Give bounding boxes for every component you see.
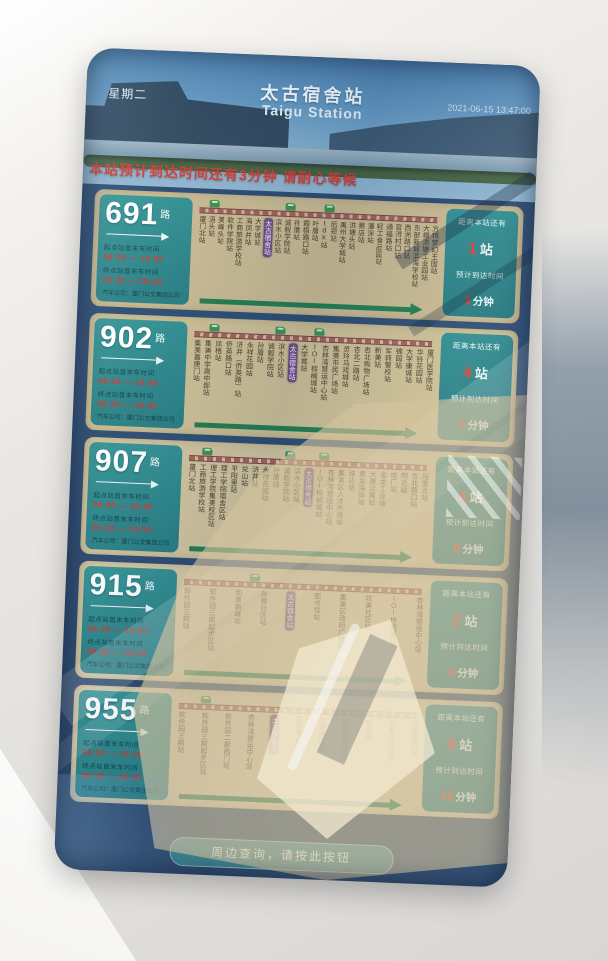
eta-stations-value: 4 xyxy=(457,488,467,505)
station-name: 金龙工业站 xyxy=(378,471,386,506)
eta-minutes-value: 6 xyxy=(448,665,455,679)
route-info-box: 907 路 起点站首末车时间 06:30 — 19:30 终点站首末车时间 06… xyxy=(85,442,182,553)
station-name: 厦门医学院站 xyxy=(425,349,434,391)
station-name: 官浔村口站 xyxy=(394,223,402,258)
nearby-query-button[interactable]: 周边查询，请按此按钮 xyxy=(168,837,393,875)
station-name: 集美中学高中部站 xyxy=(202,340,211,396)
bus-icon xyxy=(202,448,212,455)
eta-box: 距离本站还有 4站 预计到达时间 8分钟 xyxy=(432,456,508,566)
station-name: 华铃花园站 xyxy=(415,348,423,383)
route-suffix: 路 xyxy=(144,577,155,592)
eta-box: 距离本站还有 1站 预计到达时间 3分钟 xyxy=(442,209,518,319)
station-name: 孙厝站 xyxy=(256,342,264,363)
station-name: 永祥花园站 xyxy=(245,341,253,376)
route-panel: 915 路 起点站首末车时间 06:30 — 19:30 终点站首末车时间 06… xyxy=(75,561,509,696)
route-panel: 902 路 起点站首末车时间 06:30 — 19:30 终点站首末车时间 06… xyxy=(85,313,519,448)
route-direction-arrow-icon xyxy=(96,481,152,485)
station-name: 杏北路口站 xyxy=(410,472,418,507)
bus-icon xyxy=(319,452,329,459)
bus-icon xyxy=(314,328,324,335)
route-panel: 955 路 起点站首末车时间 06:30 — 19:30 终点站首末车时间 06… xyxy=(70,684,504,819)
eta-stations-unit: 站 xyxy=(469,490,484,506)
station-name: 浒井（侨英路）站 xyxy=(234,341,243,397)
eta-stations-value: 2 xyxy=(452,612,462,629)
route-direction-arrow-icon xyxy=(106,233,162,237)
bus-company-label: 汽车公司：厦门公交集团公司 xyxy=(86,659,167,671)
bus-company-label: 汽车公司：厦门公交集团公司 xyxy=(102,288,183,300)
travel-direction-arrow-icon xyxy=(179,794,391,808)
eta-prefix-label: 距离本站还有 xyxy=(433,587,499,601)
eta-box: 距离本站还有 5站 预计到达时间 15分钟 xyxy=(421,704,497,814)
station-name: 和美新城站 xyxy=(233,589,241,624)
station-name: 大嶝洪塘工业园站 xyxy=(420,225,429,281)
route-panels: 691 路 起点站首末车时间 06:30 — 19:30 终点站首末车时间 06… xyxy=(69,189,524,826)
route-number: 907 xyxy=(94,447,148,478)
station-name: 霞梧路口站 xyxy=(301,220,309,255)
route-panel: 691 路 起点站首末车时间 06:30 — 19:30 终点站首末车时间 06… xyxy=(90,189,524,324)
travel-direction-arrow-icon xyxy=(194,422,406,436)
station-name: 潘涂站 xyxy=(366,222,374,243)
station-name: 软件园三期站 xyxy=(177,711,186,753)
route-map: 软件园三期站软件园三期起步区站软件园二期西门站杏林湾营运中心站太古宿舍站观音寺站… xyxy=(173,694,421,811)
station-name: 软件学院站 xyxy=(225,216,233,251)
station-name: 杏林湾营运中心站 xyxy=(414,597,423,653)
eta-stations-unit: 站 xyxy=(480,242,495,258)
station-name: 集美区人才市场站 xyxy=(335,469,344,525)
route-direction-arrow-icon xyxy=(86,728,142,732)
eta-prefix-label: 距离本站还有 xyxy=(444,340,510,354)
stations-row: 厦门北站浯头站美峰头站软件学院站工商旅游学校站海凤井站大学城站太古宿舍站滨水小区… xyxy=(196,215,439,302)
station-name: 黄金海岸站 xyxy=(357,470,365,505)
eta-stations-unit: 站 xyxy=(474,366,489,382)
station-name: 诚毅学院站 xyxy=(282,467,290,502)
route-direction-arrow-icon xyxy=(101,357,157,361)
route-info-box: 902 路 起点站首末车时间 06:30 — 19:30 终点站首末车时间 06… xyxy=(90,318,187,429)
station-name: 孙厝站 xyxy=(272,467,280,488)
route-suffix: 路 xyxy=(150,453,161,468)
station-name: 诚毅学院站 xyxy=(266,342,274,377)
eta-minutes-unit: 分钟 xyxy=(467,420,488,433)
route-info-box: 915 路 起点站首末车时间 06:30 — 19:30 终点站首末车时间 06… xyxy=(80,566,177,677)
eta-minutes-value: 3 xyxy=(464,293,471,307)
eta-time-label: 预计到达时间 xyxy=(447,269,513,283)
station-name: 马銮北站 xyxy=(420,473,428,501)
bus-icon xyxy=(285,451,295,458)
station-name: 兑山站 xyxy=(240,465,248,486)
station-name: 海凤井站 xyxy=(244,217,252,245)
station-name: 凤梧站 xyxy=(214,340,222,361)
station-current: 太古宿舍站 xyxy=(303,468,314,507)
eta-minutes-unit: 分钟 xyxy=(455,791,476,804)
stations-row: 集美嘉庚门站集美中学高中部站凤梧站侨英路口站浒井（侨英路）站永祥花园站孙厝站诚毅… xyxy=(191,339,434,426)
station-name: 美峰头站 xyxy=(217,216,225,244)
route-suffix: 路 xyxy=(139,701,150,716)
station-name: 美峰保障房站 xyxy=(340,718,349,760)
station-name: 集美区政府广场站 xyxy=(337,593,346,649)
eta-prefix-label: 距离本站还有 xyxy=(449,216,515,230)
station-name: 理工学院集美校区站 xyxy=(207,464,217,527)
station-name: 通福路站 xyxy=(385,223,393,251)
route-number: 955 xyxy=(84,695,138,726)
bus-company-label: 汽车公司：厦门公交集团公司 xyxy=(97,412,178,424)
station-name: 孙厝站 xyxy=(293,219,301,240)
station-name: tdk站 xyxy=(320,220,328,248)
station-current: 太古宿舍站 xyxy=(285,591,296,630)
station-name: 东部新城滨海学校站 xyxy=(411,224,421,287)
station-name: 叶厝站 xyxy=(311,220,319,241)
eta-time-label: 预计到达时间 xyxy=(426,764,492,778)
station-name: 洪塘头站 xyxy=(348,222,356,250)
bus-icon xyxy=(201,696,211,703)
station-name: 坑美社区站 xyxy=(364,595,372,630)
bus-company-label: 汽车公司：厦门公交集团公司 xyxy=(91,535,172,547)
route-direction-arrow-icon xyxy=(91,605,147,609)
eta-stations-value: 4 xyxy=(463,364,473,381)
eta-stations-value: 1 xyxy=(468,241,478,258)
station-name: IOI棕榈城站 xyxy=(315,468,324,517)
eta-minutes-unit: 分钟 xyxy=(462,544,483,557)
station-name: 锦园站 xyxy=(395,348,403,369)
display-header: 星期二 太古宿舍站 Taigu Station 2021-06-15 13:47… xyxy=(82,47,540,202)
station-name: 集美市民广场站 xyxy=(330,345,339,394)
station-name: 大学城站 xyxy=(253,218,261,246)
station-name: 禹州大学城站 xyxy=(338,221,347,263)
eta-time-label: 预计到达时间 xyxy=(442,393,508,407)
station-name: 软件园三期起步区站 xyxy=(207,588,217,651)
route-suffix: 路 xyxy=(160,206,171,221)
station-current: 太古宿舍站 xyxy=(287,343,298,382)
route-suffix: 路 xyxy=(155,330,166,345)
route-info-box: 955 路 起点站首末车时间 06:30 — 19:30 终点站首末车时间 06… xyxy=(75,690,172,801)
bus-icon xyxy=(250,574,260,581)
station-name: 浯头站 xyxy=(208,216,216,237)
station-name: 侨英路口站 xyxy=(224,340,232,375)
bus-company-label: 汽车公司：厦门公交集团公司 xyxy=(81,783,162,795)
station-current: 太古宿舍站 xyxy=(269,715,280,754)
eta-time-label: 预计到达时间 xyxy=(436,516,502,530)
station-name: 滨水小区站 xyxy=(292,467,300,502)
station-name: 浒井站 xyxy=(251,466,259,487)
bus-info-display: 星期二 太古宿舍站 Taigu Station 2021-06-15 13:47… xyxy=(54,47,541,887)
station-name: 工商旅游学校站 xyxy=(234,217,243,266)
station-name: 杏北购物广场站 xyxy=(362,346,371,395)
stations-row: 厦门北站工商旅游学校站理工学院集美校区站理工学院宿舍区站平阳里站兑山站浒井站永祥… xyxy=(186,463,429,550)
station-name: 大学城站 xyxy=(300,344,308,372)
station-name: 中澳站 xyxy=(364,719,372,740)
station-name: 集美嘉庚门站 xyxy=(192,339,201,381)
station-name: 诚毅学院站 xyxy=(283,219,291,254)
route-number: 915 xyxy=(89,571,143,602)
station-name: 大学康城站 xyxy=(404,348,412,383)
eta-stations-unit: 站 xyxy=(459,738,474,754)
travel-direction-arrow-icon xyxy=(189,546,401,560)
eta-stations-unit: 站 xyxy=(464,614,479,630)
station-name: 后郑站 xyxy=(330,221,338,242)
eta-stations-value: 5 xyxy=(447,736,457,753)
station-name: 蔡店站 xyxy=(357,222,365,243)
bus-icon xyxy=(209,324,219,331)
station-name: 石亭路口站 xyxy=(410,721,418,756)
station-name: 杏北二路站 xyxy=(352,346,360,381)
station-name: 杏林湾营运中心站 xyxy=(325,469,334,525)
eta-minutes-unit: 分钟 xyxy=(472,296,493,309)
eta-box: 距离本站还有 2站 预计到达时间 6分钟 xyxy=(427,580,503,690)
station-name: 软件园二期西门站 xyxy=(222,713,231,769)
route-panel: 907 路 起点站首末车时间 06:30 — 19:30 终点站首末车时间 06… xyxy=(80,437,514,572)
station-name: 杏林湾营运中心站 xyxy=(320,345,329,401)
bus-icon xyxy=(324,205,334,212)
station-name: 滨水小区站 xyxy=(277,343,285,378)
bus-icon xyxy=(285,203,295,210)
travel-direction-arrow-icon xyxy=(184,670,396,684)
station-name: IOI棕榈城站 xyxy=(389,596,398,645)
station-current: 太古宿舍站 xyxy=(262,218,273,257)
station-name: 七星公交场站 xyxy=(386,720,395,762)
station-name: 理工学院宿舍区站 xyxy=(218,464,227,520)
station-name: 明达站 xyxy=(400,472,408,493)
station-name: 软件园三期站 xyxy=(182,587,191,629)
route-number: 902 xyxy=(99,323,153,354)
station-name: 软件园三期起步区站 xyxy=(199,712,209,775)
stations-row: 软件园三期站软件园三期起步区站和美新城站孙厝社区站太古宿舍站图书馆站集美区政府广… xyxy=(180,587,423,674)
eta-minutes-unit: 分钟 xyxy=(457,667,478,680)
eta-prefix-label: 距离本站还有 xyxy=(428,711,494,725)
station-name: 西洲路口站 xyxy=(403,224,411,259)
station-name: 电厂站 xyxy=(389,471,397,492)
travel-direction-arrow-icon xyxy=(200,298,412,312)
route-map: 集美嘉庚门站集美中学高中部站凤梧站侨英路口站浒井（侨英路）站永祥花园站孙厝站诚毅… xyxy=(188,322,436,439)
wall-reflection xyxy=(542,228,608,788)
eta-box: 距离本站还有 4站 预计到达时间 9分钟 xyxy=(437,333,513,443)
eta-time-label: 预计到达时间 xyxy=(431,640,497,654)
eta-minutes-value: 15 xyxy=(440,789,454,804)
station-name: 大唐公寓站 xyxy=(368,471,376,506)
station-name: 灵玲马戏城站 xyxy=(341,345,350,387)
route-number: 691 xyxy=(105,199,159,230)
station-name: 轻工食品园站 xyxy=(375,223,384,265)
route-info-box: 691 路 起点站首末车时间 06:30 — 19:30 终点站首末车时间 06… xyxy=(96,194,193,305)
station-name: 新美站 xyxy=(374,347,382,368)
eta-minutes-value: 9 xyxy=(459,417,466,431)
station-name: 工商旅游学校站 xyxy=(197,463,206,512)
station-name: 厦门北站 xyxy=(188,463,196,491)
station-name: 孙厝社区站 xyxy=(259,590,267,625)
route-map: 厦门北站工商旅游学校站理工学院集美校区站理工学院宿舍区站平阳里站兑山站浒井站永祥… xyxy=(183,446,431,563)
station-name: 军转警校站 xyxy=(383,347,391,382)
eta-minutes-value: 8 xyxy=(453,541,460,555)
station-name: 方特梦幻王国站 xyxy=(430,225,439,274)
station-name: 路达站 xyxy=(347,470,355,491)
stations-row: 软件园三期站软件园三期起步区站软件园二期西门站杏林湾营运中心站太古宿舍站观音寺站… xyxy=(175,711,418,798)
bus-icon xyxy=(275,327,285,334)
station-name: 永祥花园站 xyxy=(261,466,269,501)
station-name: 平阳里站 xyxy=(230,465,238,493)
station-name: 厦门北站 xyxy=(198,215,206,243)
route-map: 厦门北站浯头站美峰头站软件学院站工商旅游学校站海凤井站大学城站太古宿舍站滨水小区… xyxy=(193,198,441,315)
station-name: 滨水小区站 xyxy=(274,218,282,253)
station-name: 观音寺站 xyxy=(295,716,303,744)
station-name: 沙堤路口站 xyxy=(317,717,325,752)
station-name: IOI棕榈城站 xyxy=(309,344,318,393)
bus-icon xyxy=(210,200,220,207)
station-name: 杏林湾营运中心站 xyxy=(245,714,254,770)
route-map: 软件园三期站软件园三期起步区站和美新城站孙厝社区站太古宿舍站图书馆站集美区政府广… xyxy=(178,570,426,687)
station-name: 图书馆站 xyxy=(313,592,321,620)
eta-prefix-label: 距离本站还有 xyxy=(439,464,505,478)
